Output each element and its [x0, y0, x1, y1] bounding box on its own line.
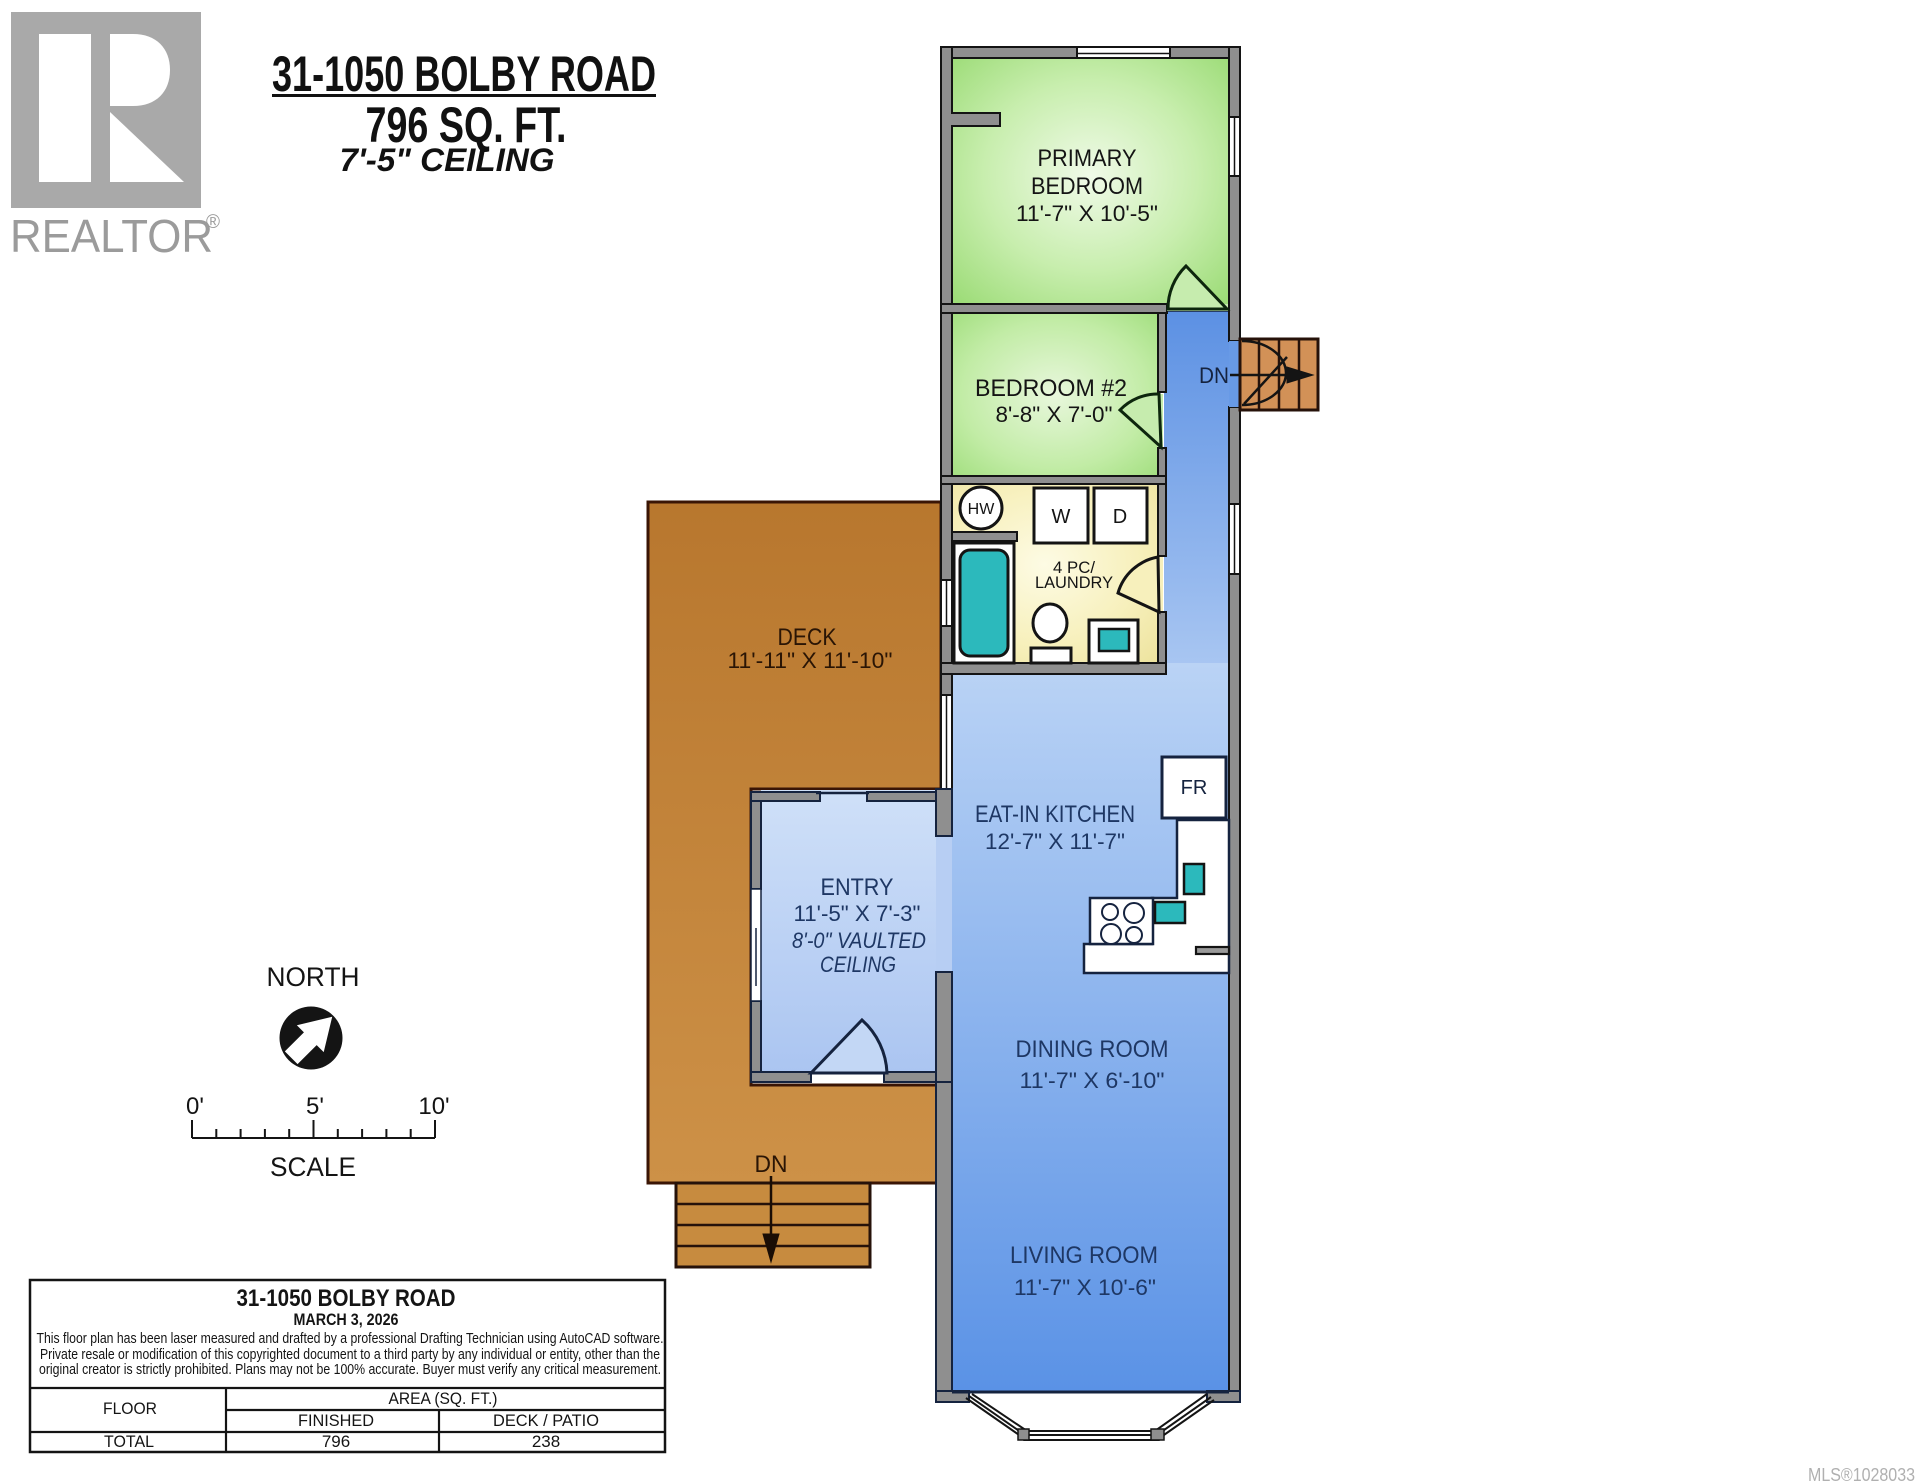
- svg-text:MARCH 3, 2026: MARCH 3, 2026: [294, 1310, 399, 1329]
- svg-text:TOTAL: TOTAL: [104, 1432, 154, 1451]
- svg-text:796: 796: [322, 1432, 350, 1451]
- svg-text:FR: FR: [1181, 777, 1208, 799]
- svg-text:10': 10': [418, 1093, 449, 1120]
- svg-text:11'-7" X 10'-6": 11'-7" X 10'-6": [1014, 1275, 1156, 1300]
- svg-text:11'-7" X 6'-10": 11'-7" X 6'-10": [1020, 1068, 1165, 1093]
- svg-text:DN: DN: [755, 1151, 788, 1178]
- svg-text:BEDROOM: BEDROOM: [1031, 173, 1143, 200]
- svg-text:PRIMARY: PRIMARY: [1038, 145, 1137, 172]
- svg-text:D: D: [1113, 506, 1127, 528]
- svg-text:238: 238: [532, 1432, 560, 1451]
- svg-text:MLS®1028033: MLS®1028033: [1808, 1465, 1915, 1484]
- svg-text:NORTH: NORTH: [267, 962, 360, 992]
- svg-text:0': 0': [186, 1093, 204, 1120]
- svg-text:5': 5': [306, 1093, 324, 1120]
- svg-text:W: W: [1052, 506, 1071, 528]
- svg-text:original creator is strictly p: original creator is strictly prohibited.…: [39, 1362, 661, 1378]
- svg-text:31-1050 BOLBY ROAD: 31-1050 BOLBY ROAD: [237, 1285, 456, 1312]
- svg-text:7'-5" CEILING: 7'-5" CEILING: [340, 142, 555, 178]
- svg-text:CEILING: CEILING: [820, 952, 896, 977]
- svg-text:AREA (SQ. FT.): AREA (SQ. FT.): [389, 1389, 498, 1408]
- svg-text:Private resale or modification: Private resale or modification of this c…: [40, 1347, 660, 1363]
- svg-text:HW: HW: [968, 501, 996, 518]
- svg-text:FLOOR: FLOOR: [103, 1399, 157, 1418]
- svg-text:REALTOR: REALTOR: [10, 210, 213, 262]
- svg-text:®: ®: [206, 212, 220, 233]
- svg-text:DECK / PATIO: DECK / PATIO: [493, 1411, 599, 1430]
- svg-text:FINISHED: FINISHED: [298, 1411, 374, 1430]
- svg-text:DECK: DECK: [778, 624, 837, 651]
- svg-text:LIVING ROOM: LIVING ROOM: [1010, 1242, 1158, 1269]
- svg-text:8'-0" VAULTED: 8'-0" VAULTED: [792, 928, 926, 953]
- svg-text:8'-8" X 7'-0": 8'-8" X 7'-0": [996, 402, 1113, 427]
- svg-text:LAUNDRY: LAUNDRY: [1035, 573, 1113, 592]
- svg-text:ENTRY: ENTRY: [821, 874, 894, 901]
- svg-text:This floor plan has been laser: This floor plan has been laser measured …: [37, 1331, 664, 1347]
- svg-text:12'-7" X 11'-7": 12'-7" X 11'-7": [985, 829, 1125, 854]
- svg-text:11'-11" X 11'-10": 11'-11" X 11'-10": [728, 648, 893, 673]
- svg-text:SCALE: SCALE: [270, 1152, 356, 1182]
- svg-text:BEDROOM #2: BEDROOM #2: [975, 375, 1127, 402]
- svg-text:EAT-IN KITCHEN: EAT-IN KITCHEN: [975, 801, 1135, 828]
- svg-text:31-1050 BOLBY ROAD: 31-1050 BOLBY ROAD: [272, 46, 656, 102]
- svg-text:11'-7" X 10'-5": 11'-7" X 10'-5": [1016, 201, 1158, 226]
- svg-text:DINING ROOM: DINING ROOM: [1016, 1036, 1169, 1063]
- svg-text:DN: DN: [1199, 363, 1229, 388]
- svg-text:11'-5" X 7'-3": 11'-5" X 7'-3": [794, 901, 921, 926]
